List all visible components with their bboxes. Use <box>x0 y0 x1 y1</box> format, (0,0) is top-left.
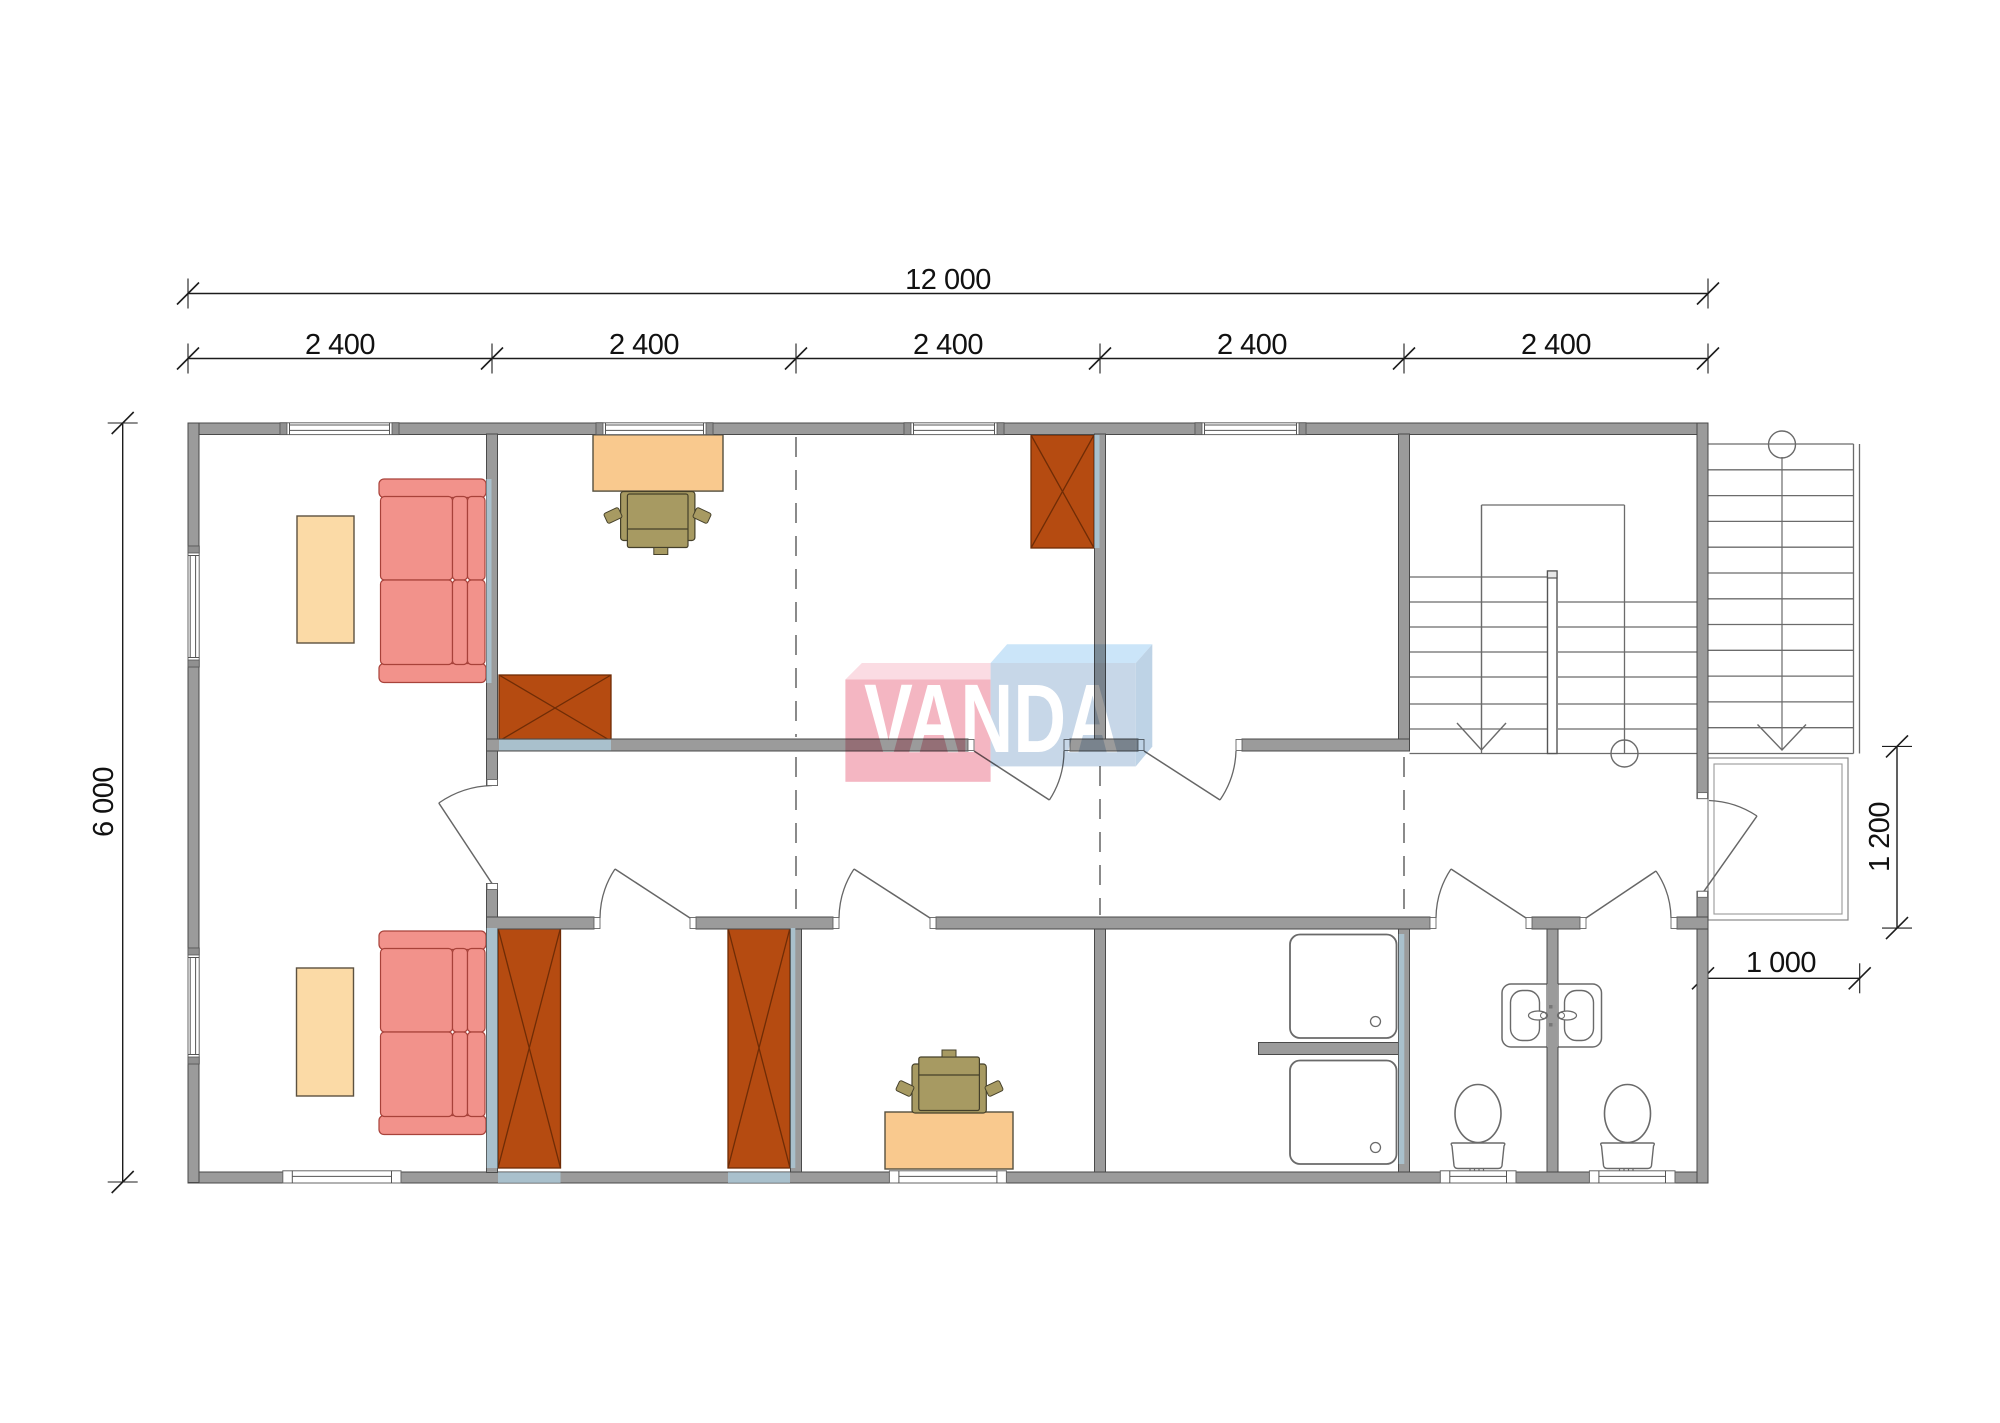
svg-text:6 000: 6 000 <box>88 767 120 837</box>
svg-text:2 400: 2 400 <box>1521 329 1591 361</box>
svg-text:1 000: 1 000 <box>1746 947 1816 979</box>
svg-text:2 400: 2 400 <box>305 329 375 361</box>
svg-text:2 400: 2 400 <box>1217 329 1287 361</box>
svg-text:1 200: 1 200 <box>1864 802 1896 872</box>
svg-text:2 400: 2 400 <box>913 329 983 361</box>
svg-text:2 400: 2 400 <box>609 329 679 361</box>
svg-text:12 000: 12 000 <box>905 264 991 296</box>
